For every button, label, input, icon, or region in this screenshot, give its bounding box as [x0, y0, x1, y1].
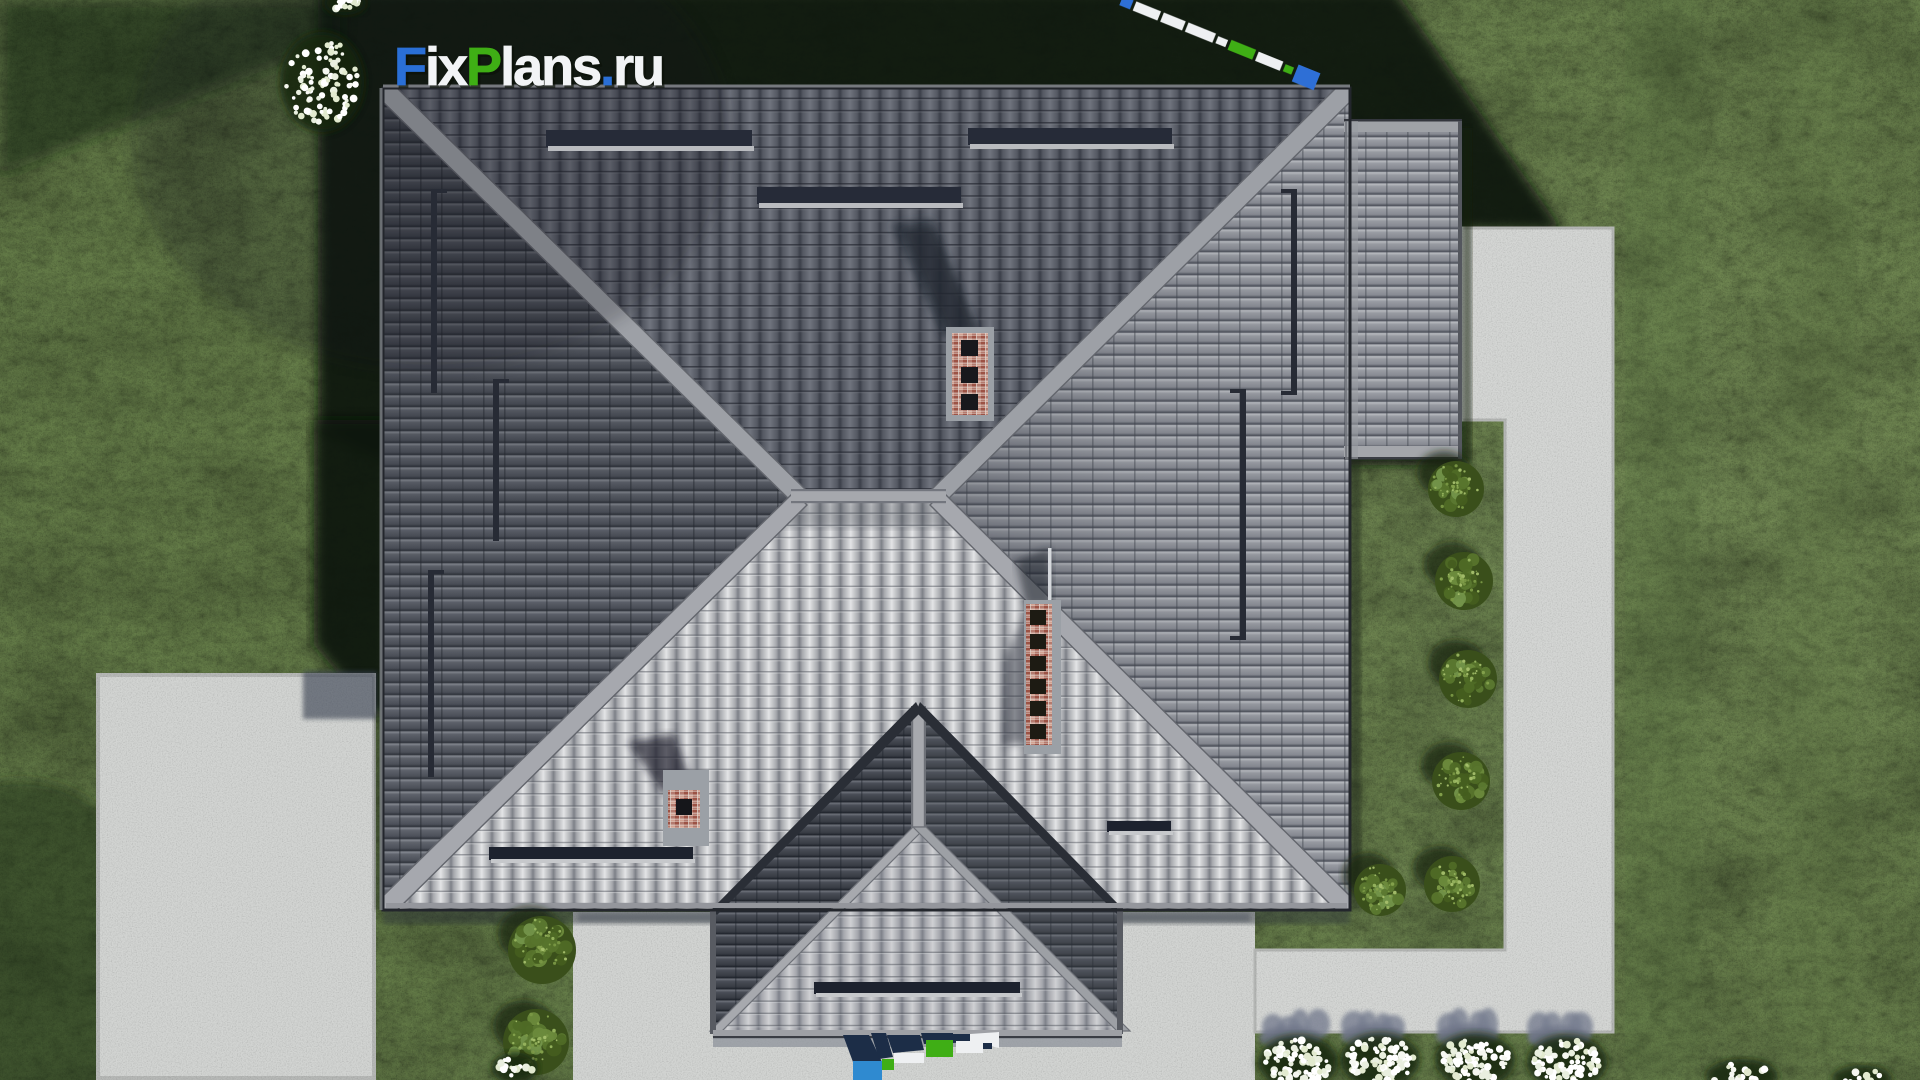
svg-text:FixPlans.ru: FixPlans.ru	[394, 37, 663, 97]
